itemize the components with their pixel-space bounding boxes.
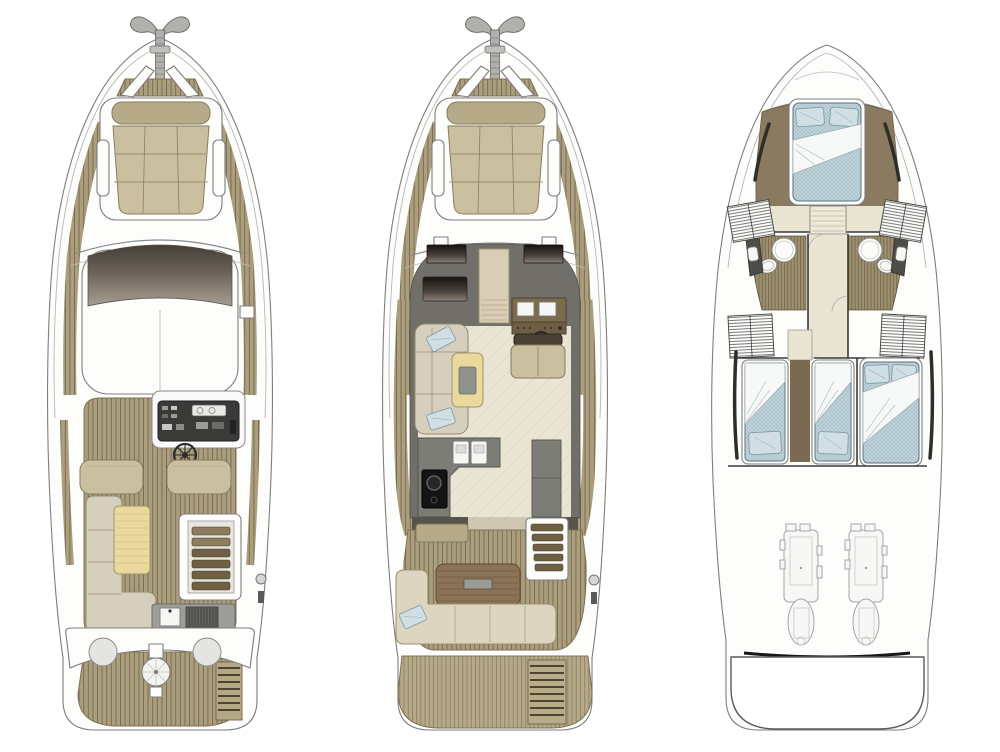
cockpit-steps — [526, 518, 568, 580]
cockpit-table — [436, 564, 520, 606]
flybridge-sunbed-port — [80, 460, 143, 494]
gate-hinge — [258, 591, 264, 603]
nightstand — [788, 330, 812, 360]
windshield — [88, 245, 232, 306]
deck-plans-drawing — [0, 0, 1000, 752]
flybridge-stairs — [179, 514, 241, 600]
flybridge-helm-console — [152, 391, 245, 448]
salon-table — [452, 353, 483, 407]
lower-deck-plan — [712, 45, 943, 730]
lower-swim-platform — [731, 657, 924, 729]
flybridge-wet-bar — [152, 604, 235, 630]
wardrobe — [727, 200, 775, 243]
lower-corridor — [808, 234, 848, 358]
flybridge-table — [114, 506, 150, 574]
guest-cabin-floor — [790, 360, 810, 462]
salon-door — [468, 517, 532, 530]
swim-platform — [398, 656, 592, 728]
companionway — [479, 249, 509, 323]
vip-bed — [789, 99, 865, 205]
companionway-stairs — [810, 206, 846, 234]
cleat-icon — [256, 574, 266, 584]
windshield-port — [427, 245, 466, 263]
yacht-deck-plans — [0, 0, 1000, 752]
galley-cabinet — [532, 440, 561, 517]
double-bed — [860, 358, 922, 466]
aft-seat-port — [89, 638, 117, 666]
cleat-icon — [589, 575, 599, 585]
twin-bed-outboard — [742, 360, 788, 464]
flybridge-deck-plan — [48, 17, 273, 730]
wardrobe — [879, 200, 927, 243]
twin-bed-inboard — [812, 360, 854, 464]
table-plaque — [464, 579, 492, 589]
main-helm-console — [512, 298, 566, 334]
main-deck-plan — [383, 17, 608, 730]
wardrobe — [880, 314, 926, 358]
windshield-starboard — [524, 245, 563, 263]
aft-seat-starboard — [193, 638, 221, 666]
helm-seat — [511, 334, 565, 378]
flybridge-sunbed-starboard — [167, 460, 231, 494]
aft-deck-ladder — [216, 662, 242, 720]
cockpit-bench-forward — [416, 524, 468, 542]
salon-tv — [423, 277, 467, 301]
